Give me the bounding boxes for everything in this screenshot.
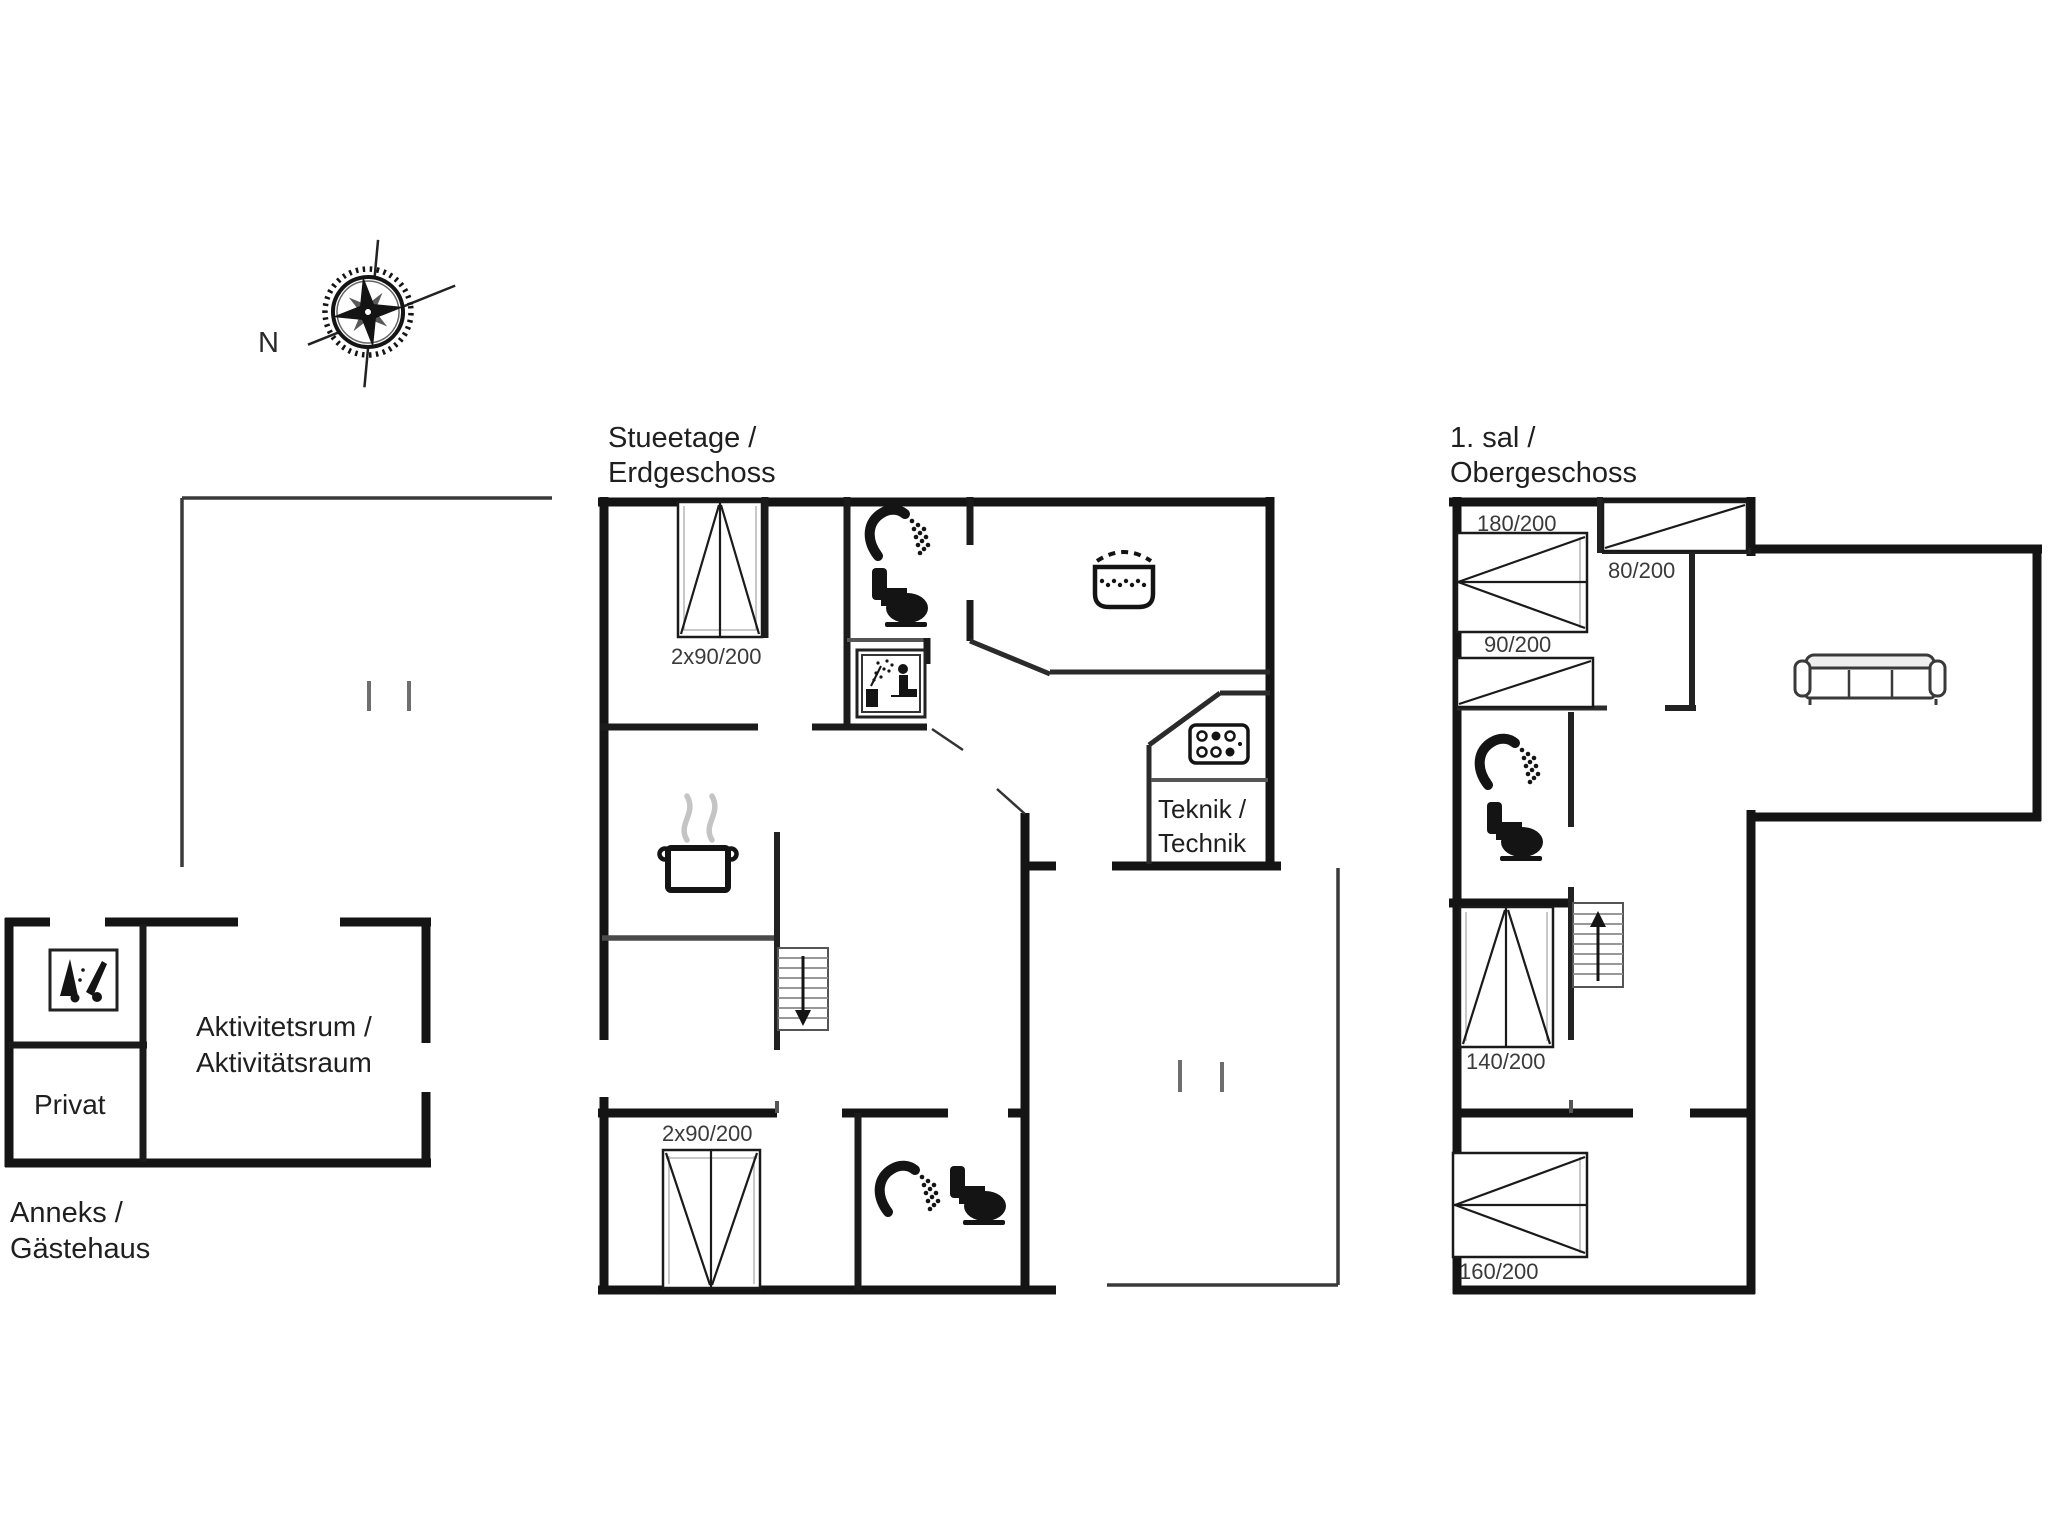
activity-room-label-line2: Aktivitätsraum	[196, 1047, 372, 1078]
stairs-up-icon	[1573, 903, 1623, 987]
hot-tub-icon	[1095, 552, 1153, 607]
terrace-outline-bottom	[1107, 868, 1338, 1285]
floor-plan-canvas: N Privat Aktivitetsrum / Aktivitätsraum …	[0, 0, 2048, 1536]
gf-bed-top-label: 2x90/200	[671, 644, 762, 669]
ff-bed-140-label: 140/200	[1466, 1049, 1546, 1074]
ground-floor-title-line1: Stueetage /	[608, 422, 757, 454]
ff-bed-90-label: 90/200	[1484, 632, 1551, 657]
ff-bed-160-label: 160/200	[1459, 1259, 1539, 1284]
first-floor-title-line2: Obergeschoss	[1450, 457, 1637, 489]
door-swing	[932, 729, 963, 750]
ff-bed-80-label: 80/200	[1608, 558, 1675, 583]
door-swing	[997, 789, 1025, 814]
steam-icon	[684, 796, 690, 840]
north-label: N	[258, 327, 279, 359]
gf-double-bed-bottom	[663, 1150, 760, 1288]
ff-bed-90	[1457, 658, 1593, 707]
stairs-down-icon	[778, 948, 828, 1030]
annex-title-line2: Gästehaus	[10, 1233, 150, 1265]
toilet-icon	[1487, 802, 1543, 861]
ff-bed-160	[1453, 1153, 1587, 1257]
shower-icon	[880, 1166, 941, 1212]
floor-plan-page: N Privat Aktivitetsrum / Aktivitätsraum …	[0, 0, 2048, 1536]
annex-building: Privat Aktivitetsrum / Aktivitätsraum An…	[5, 918, 431, 1265]
toilet-icon	[950, 1166, 1006, 1225]
gf-bed-bottom-label: 2x90/200	[662, 1121, 753, 1146]
terrace-outline-left	[182, 498, 552, 867]
cleaning-equipment-icon	[50, 950, 117, 1010]
toilet-icon	[872, 568, 928, 627]
first-floor-plan: 1. sal / Obergeschoss	[1449, 422, 2042, 1294]
compass-rose-icon	[295, 230, 468, 394]
ff-bed-180-label: 180/200	[1477, 511, 1557, 536]
ff-bed-80	[1603, 502, 1747, 551]
ground-floor-plan: Stueetage / Erdgeschoss	[598, 422, 1281, 1292]
shower-icon	[1480, 739, 1541, 785]
annex-title-line1: Anneks /	[10, 1197, 124, 1229]
sauna-cabin-icon	[857, 650, 925, 717]
first-floor-title-line1: 1. sal /	[1450, 422, 1536, 454]
gf-double-bed-top	[678, 502, 762, 637]
boiler-icon	[1190, 725, 1248, 763]
cooking-pot-icon	[660, 796, 737, 890]
privat-label: Privat	[34, 1089, 106, 1120]
sofa-icon	[1795, 655, 1945, 705]
teknik-room-label-line2: Technik	[1158, 828, 1247, 858]
activity-room-label-line1: Aktivitetsrum /	[196, 1011, 372, 1042]
ground-floor-title-line2: Erdgeschoss	[608, 457, 776, 489]
ff-bed-180	[1457, 533, 1587, 632]
shower-icon	[870, 510, 931, 556]
teknik-room-label-line1: Teknik /	[1158, 794, 1247, 824]
steam-icon	[709, 796, 715, 840]
ff-bed-140	[1460, 907, 1553, 1047]
